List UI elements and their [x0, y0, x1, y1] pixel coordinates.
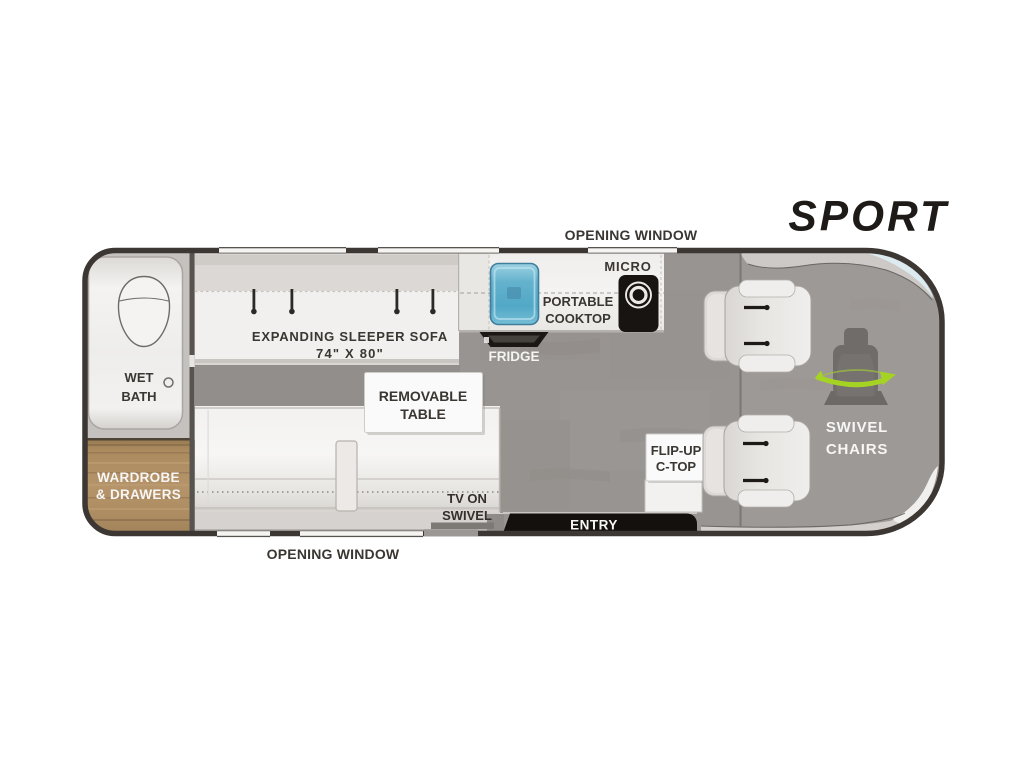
svg-text:REMOVABLE: REMOVABLE: [379, 388, 467, 404]
svg-text:TABLE: TABLE: [400, 406, 446, 422]
svg-text:TV ON: TV ON: [447, 491, 487, 506]
svg-text:SWIVEL: SWIVEL: [826, 419, 888, 436]
svg-text:WARDROBE: WARDROBE: [97, 470, 180, 485]
svg-text:FRIDGE: FRIDGE: [488, 349, 539, 364]
svg-text:EXPANDING SLEEPER SOFA: EXPANDING SLEEPER SOFA: [252, 329, 448, 344]
svg-text:SWIVEL: SWIVEL: [442, 508, 492, 523]
svg-text:MICRO: MICRO: [604, 259, 651, 274]
svg-text:COOKTOP: COOKTOP: [545, 311, 611, 326]
svg-text:OPENING WINDOW: OPENING WINDOW: [565, 227, 698, 243]
svg-text:FLIP-UP: FLIP-UP: [651, 443, 702, 458]
svg-text:C-TOP: C-TOP: [656, 459, 697, 474]
svg-text:SPORT: SPORT: [788, 194, 949, 241]
svg-text:OPENING WINDOW: OPENING WINDOW: [267, 546, 400, 562]
svg-text:CHAIRS: CHAIRS: [826, 441, 888, 458]
svg-text:& DRAWERS: & DRAWERS: [96, 487, 181, 502]
svg-text:PORTABLE: PORTABLE: [543, 294, 614, 309]
svg-text:74" X 80": 74" X 80": [316, 346, 384, 361]
svg-text:WET: WET: [125, 370, 154, 385]
svg-text:BATH: BATH: [121, 389, 156, 404]
svg-text:ENTRY: ENTRY: [570, 518, 618, 533]
